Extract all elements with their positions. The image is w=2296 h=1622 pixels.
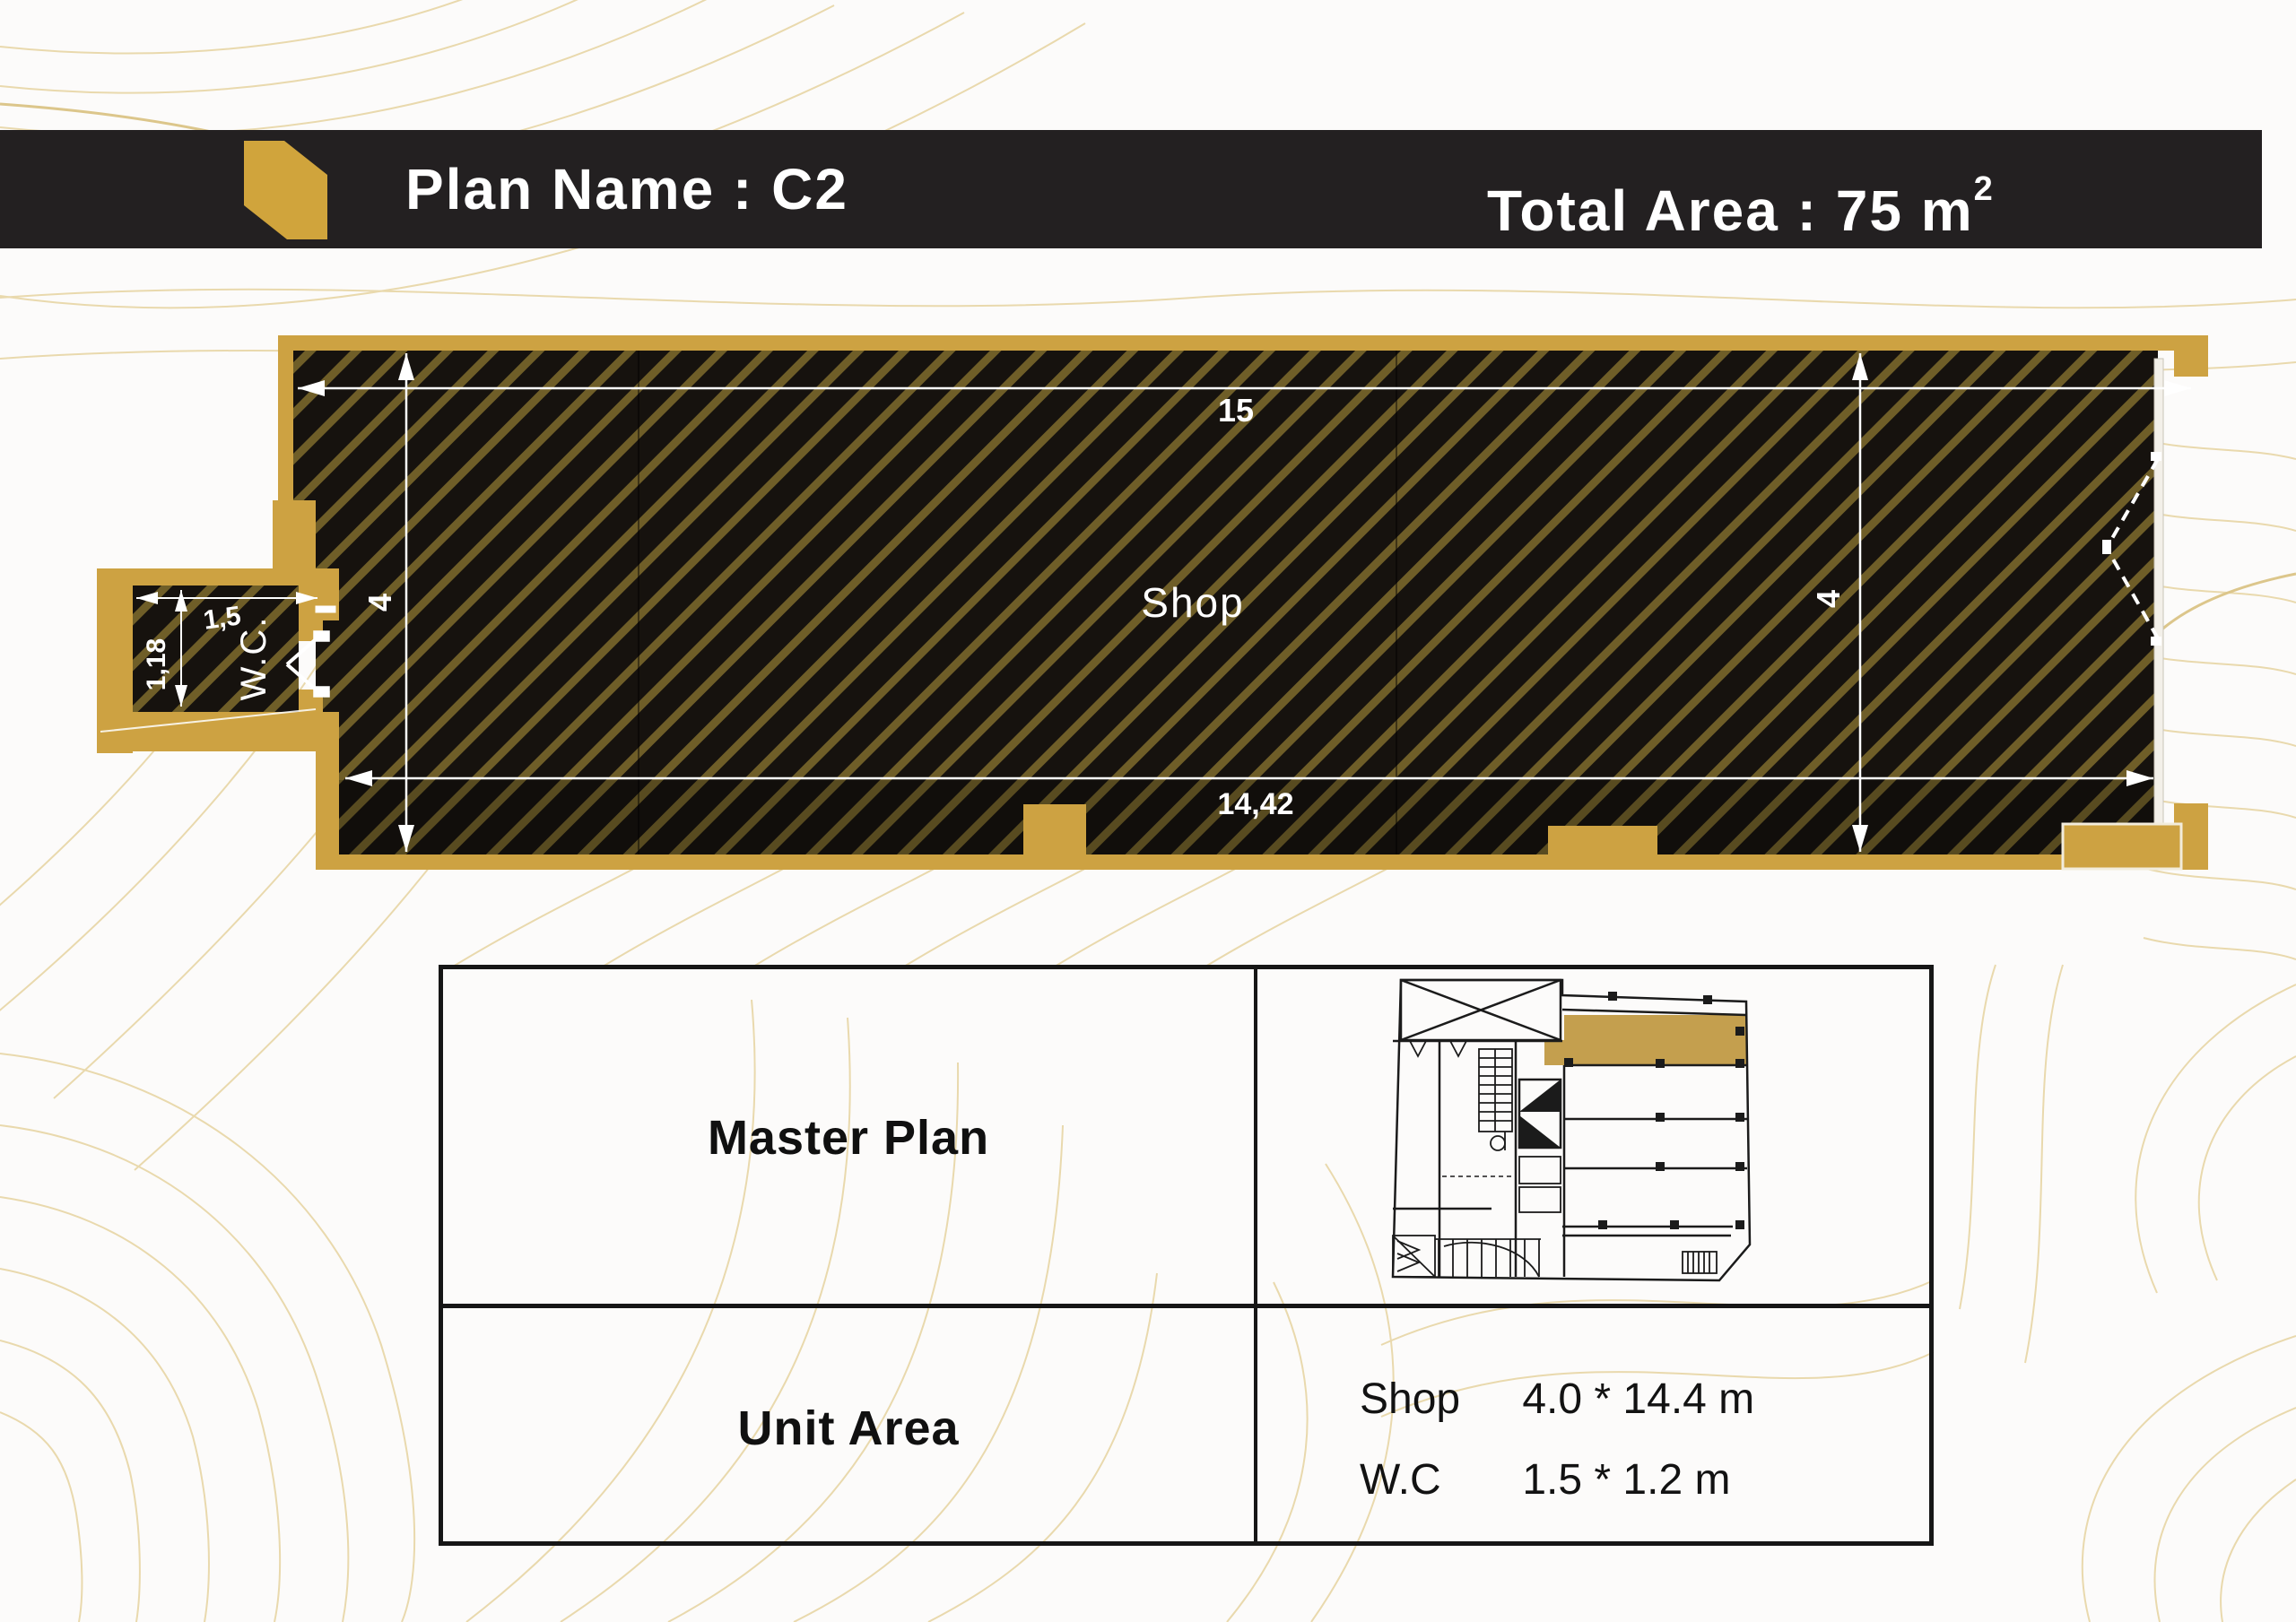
unit-shop-name: Shop: [1360, 1375, 1510, 1424]
dim-top-label: 15: [1218, 392, 1254, 429]
total-area-text: Total Area : 75 m: [1487, 178, 1974, 243]
floor-plan: 15 4 4 14,42 Shop W.C. 1,5 1,18: [97, 335, 2208, 870]
unit-area-label: Unit Area: [737, 1401, 959, 1456]
plan-icon: [244, 141, 328, 240]
master-plan-label: Master Plan: [708, 1110, 989, 1166]
page: 15 4 4 14,42 Shop W.C. 1,5 1,18: [0, 0, 2296, 1622]
shop-room-label: Shop: [1141, 579, 1244, 626]
unit-wc-name: W.C: [1360, 1455, 1510, 1505]
info-table: Master Plan Unit Area Shop 4.0 * 14.4 m …: [439, 965, 1934, 1546]
dim-bottom-label: 14,42: [1217, 787, 1293, 821]
storefront-line: [2154, 359, 2163, 854]
wc-dim-height-label: 1,18: [142, 638, 171, 690]
unit-area-row-shop: Shop 4.0 * 14.4 m: [1360, 1375, 1754, 1424]
table-column-divider: [1254, 969, 1257, 1541]
unit-area-row-wc: W.C 1.5 * 1.2 m: [1360, 1455, 1730, 1505]
dim-left-label: 4: [361, 594, 398, 612]
unit-wc-dims: 1.5 * 1.2 m: [1522, 1456, 1730, 1504]
total-area-title: Total Area : 75 m2: [1487, 130, 1993, 248]
dim-right-label: 4: [1810, 590, 1847, 608]
header-bar: Plan Name : C2 Total Area : 75 m2: [0, 130, 2262, 248]
wc-dim-width-label: 1,5: [202, 601, 243, 635]
total-area-superscript: 2: [1974, 170, 1993, 208]
table-row-divider: [443, 1304, 1929, 1308]
plan-name-title: Plan Name : C2: [405, 130, 848, 248]
unit-shop-dims: 4.0 * 14.4 m: [1522, 1375, 1754, 1423]
